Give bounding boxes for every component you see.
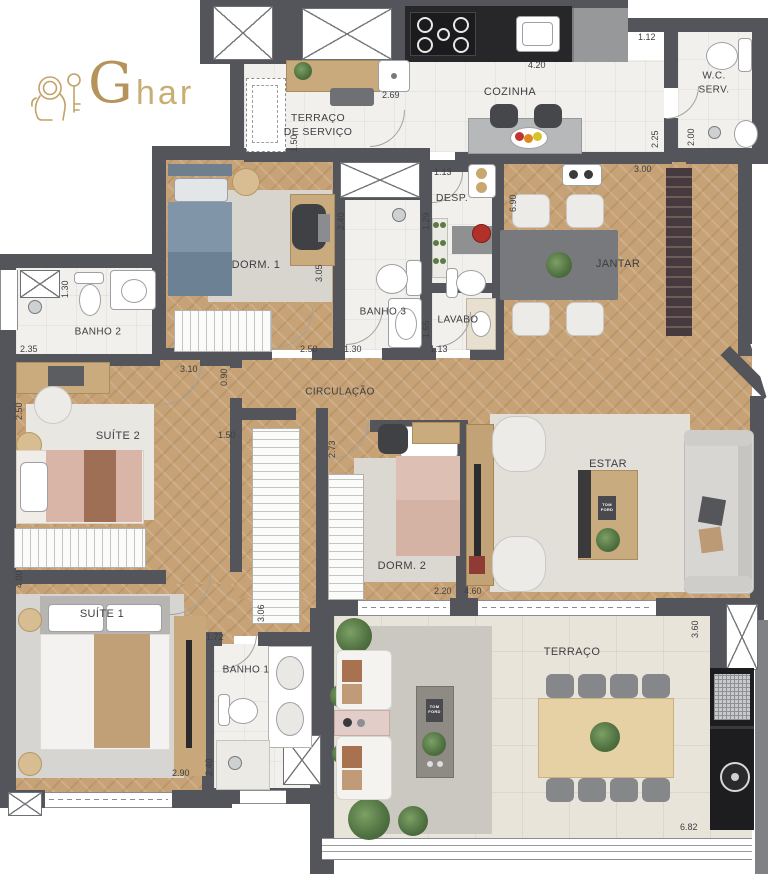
shower-head-icon — [708, 126, 721, 139]
toilet-icon — [228, 698, 258, 724]
window-banho1 — [240, 790, 286, 804]
decor-item — [437, 761, 443, 767]
room-label-circulacao: CIRCULAÇÃO — [305, 387, 375, 398]
terrace-railing — [322, 838, 752, 860]
railing-line — [322, 845, 752, 846]
kitchen-sink-icon — [516, 16, 560, 52]
dimension: 2.50 — [14, 402, 24, 420]
bed-throw — [94, 634, 150, 748]
laptop-icon — [318, 214, 330, 242]
toilet-icon — [376, 264, 408, 294]
plant-icon — [348, 798, 390, 840]
fruit — [524, 134, 533, 143]
basin-icon — [276, 702, 304, 736]
outdoor-chair — [610, 778, 638, 802]
basin-icon — [276, 656, 304, 690]
glass-door-estar-terraco — [478, 600, 656, 616]
dimension: 2.35 — [20, 344, 38, 354]
nightstand — [18, 608, 42, 632]
sofa-backrest — [738, 434, 752, 588]
toilet-tank — [738, 38, 752, 72]
wall — [258, 632, 310, 646]
plant-icon — [596, 528, 620, 552]
dimension: 0.90 — [219, 368, 229, 386]
shower-head-icon — [28, 300, 42, 314]
logo-letter-g: G — [88, 56, 133, 112]
logo-text: har — [136, 76, 194, 110]
dimension: 1.30 — [344, 344, 362, 354]
jar — [440, 222, 446, 228]
sideboard-appliance — [562, 164, 602, 186]
dimension: 1.13 — [430, 344, 448, 354]
closet-dorm1 — [174, 310, 272, 352]
pantry-rack — [468, 164, 496, 198]
stove-icon — [410, 12, 476, 56]
burner-icon — [437, 28, 450, 41]
sink-basin — [522, 22, 553, 46]
dimension: 2.25 — [650, 130, 660, 148]
toilet-tank — [74, 272, 104, 284]
wall — [230, 60, 244, 160]
room-label-banho3: BANHO 3 — [360, 307, 407, 318]
jar — [476, 182, 487, 193]
knob — [584, 170, 593, 179]
service-sink-icon — [378, 60, 410, 92]
shower-head-icon — [392, 208, 406, 222]
dimension: 2.73 — [327, 440, 337, 458]
dimension: 1.30 — [60, 280, 70, 298]
plant-icon — [590, 722, 620, 752]
room-label-suite2: SUÍTE 2 — [96, 430, 140, 442]
wall — [686, 152, 752, 164]
dimension: 3.06 — [256, 604, 266, 622]
shaft-hatch-icon — [302, 8, 392, 60]
bathroom-sink — [388, 298, 422, 348]
knob — [569, 170, 578, 179]
basin-icon — [121, 279, 147, 303]
toilet-icon — [456, 270, 486, 296]
dimension: 2.40 — [204, 758, 214, 776]
railing-line — [322, 851, 752, 852]
dimension: 4.60 — [464, 586, 482, 596]
room-label-suite1: SUÍTE 1 — [80, 608, 124, 620]
desk-chair — [378, 424, 408, 454]
bed-blanket — [168, 252, 232, 296]
outdoor-chair — [546, 674, 574, 698]
dimension: 3.10 — [180, 364, 198, 374]
stool — [534, 104, 562, 128]
reserved-area-inner — [252, 85, 278, 143]
sofa-pillow — [698, 496, 726, 526]
wall — [738, 164, 752, 356]
window-banho2 — [0, 270, 18, 330]
washer-icon — [330, 88, 374, 106]
wall — [230, 398, 242, 572]
dimension: 3.00 — [634, 164, 652, 174]
jar — [433, 222, 439, 228]
wall — [16, 570, 166, 584]
tv-icon — [186, 640, 192, 748]
jar — [440, 258, 446, 264]
mixer-icon — [472, 224, 491, 243]
burner-icon — [453, 17, 469, 33]
wall — [664, 118, 678, 152]
toilet-icon — [706, 42, 738, 70]
sofa-armrest — [684, 576, 752, 592]
shaft-hatch-icon — [8, 792, 42, 816]
armchair — [492, 536, 546, 592]
dimension: 2.69 — [382, 90, 400, 100]
room-label-cozinha: COZINHA — [484, 86, 536, 98]
drain — [391, 73, 397, 79]
dining-chair — [566, 194, 604, 228]
plant-icon — [294, 62, 312, 80]
dimension: 1.13 — [434, 167, 452, 177]
dimension: 1.12 — [638, 32, 656, 42]
glass-door-dorm2-terraco — [358, 600, 450, 616]
decor-item — [343, 718, 352, 727]
decor-book: TOM FORD — [598, 496, 616, 520]
room-label-terraco: TERRAÇO — [544, 646, 601, 658]
dimension: 2.50 — [300, 344, 318, 354]
room-label-wc-serv: SERV. — [699, 85, 730, 96]
toilet-icon — [79, 284, 101, 316]
wall — [610, 18, 760, 32]
wine-rack — [666, 168, 692, 336]
toilet-tank — [406, 260, 422, 296]
dresser — [412, 422, 460, 444]
wall — [382, 348, 436, 360]
jar — [476, 168, 487, 179]
burner-icon — [417, 37, 433, 53]
room-label-dorm2: DORM. 2 — [378, 560, 427, 572]
plant-icon — [422, 732, 446, 756]
coffee-table-tray — [578, 470, 591, 558]
sofa-armrest — [684, 430, 752, 446]
wall — [664, 32, 678, 88]
dimension: 6.82 — [680, 822, 698, 832]
room-label-dorm1: DORM. 1 — [232, 259, 281, 271]
shaft-hatch-icon — [20, 270, 60, 298]
decor-books — [469, 556, 485, 574]
bed-throw — [84, 450, 116, 522]
room-label-desp: DESP. — [436, 192, 468, 204]
jar — [433, 258, 439, 264]
bed-headboard — [168, 164, 232, 176]
jar — [440, 240, 446, 246]
sofa-pillow — [698, 527, 723, 554]
armchair — [492, 416, 546, 472]
room-label-estar: ESTAR — [589, 458, 627, 470]
bathroom-sink — [110, 270, 156, 310]
room-label-terraco-servico: TERRAÇO — [291, 112, 345, 124]
sofa-pillow — [342, 684, 362, 704]
bed-blanket — [396, 500, 460, 556]
outdoor-chair — [642, 674, 670, 698]
plant-icon — [336, 618, 372, 654]
sofa-pillow — [342, 660, 362, 682]
room-label-lavabo: LAVABO — [438, 315, 479, 326]
decor-item — [427, 761, 433, 767]
window-mullion — [362, 607, 446, 608]
dimension: 1.72 — [206, 632, 224, 642]
fruit — [515, 132, 524, 141]
room-label-banho1: BANHO 1 — [223, 665, 270, 676]
desk-chair — [34, 386, 72, 424]
dimension: 6.90 — [508, 194, 518, 212]
stool — [490, 104, 518, 128]
lion-key-logo-icon — [28, 68, 94, 128]
bbq-divider — [710, 726, 754, 729]
decor-book: TOM FORD — [426, 699, 443, 722]
dimension: 1.50 — [218, 430, 236, 440]
burner-icon — [453, 37, 469, 53]
outdoor-chair — [610, 674, 638, 698]
laptop-icon — [48, 366, 84, 386]
plant-icon — [398, 806, 428, 836]
dimension: 1.29 — [421, 212, 431, 230]
shaft-hatch-icon — [213, 6, 273, 60]
window-suite1 — [45, 792, 172, 808]
floor-plan: TOM FORD TOM FORD — [0, 0, 768, 874]
sofa-pillow — [342, 746, 362, 768]
decor-item — [357, 719, 365, 727]
wall — [0, 254, 166, 268]
outdoor-chair — [578, 674, 606, 698]
bbq-sink-icon — [720, 762, 750, 792]
kitchen-tall-cabinet — [572, 8, 628, 62]
drain — [731, 773, 739, 781]
wall — [450, 598, 478, 616]
shaft-hatch-icon — [726, 604, 758, 670]
room-label-banho2: BANHO 2 — [75, 327, 122, 338]
sofa-pillow — [342, 770, 362, 790]
book-title: TOM FORD — [598, 503, 616, 512]
shaft-hatch-icon — [340, 162, 420, 198]
reserved-area-dashed — [246, 78, 286, 152]
dimension: 2.90 — [172, 768, 190, 778]
dimension: 1.50 — [289, 134, 299, 152]
plant-icon — [546, 252, 572, 278]
wall — [607, 152, 672, 164]
room-label-jantar: JANTAR — [596, 258, 640, 270]
dimension: 4.00 — [14, 570, 24, 588]
grill-icon — [714, 674, 750, 720]
burner-icon — [417, 17, 433, 33]
shower-head-icon — [228, 756, 242, 770]
fruit — [533, 132, 542, 141]
outdoor-side-table — [334, 710, 390, 736]
book-title: TOM FORD — [426, 705, 443, 714]
fruit-bowl — [510, 127, 548, 149]
pillow — [20, 462, 48, 512]
room-label-wc-serv: W.C. — [702, 71, 725, 82]
tv-icon — [474, 464, 481, 560]
dining-chair — [566, 302, 604, 336]
shower-area — [216, 740, 270, 790]
dimension: 4.20 — [528, 60, 546, 70]
dimension: 3.60 — [690, 620, 700, 638]
side-table — [232, 168, 260, 196]
dining-chair — [512, 302, 550, 336]
dimension: 2.40 — [336, 212, 346, 230]
wall — [230, 354, 242, 368]
dimension: 2.20 — [434, 586, 452, 596]
window-mullion — [49, 799, 168, 800]
dimension: 1.65 — [421, 320, 431, 338]
jar — [433, 240, 439, 246]
closet-dorm2 — [328, 474, 364, 600]
dimension: 3.05 — [314, 264, 324, 282]
outdoor-chair — [578, 778, 606, 802]
closet-corridor — [252, 428, 300, 624]
pillow — [174, 178, 228, 202]
closet-suite2 — [14, 528, 146, 568]
window-mullion — [482, 607, 652, 608]
nightstand — [18, 752, 42, 776]
wall — [152, 146, 244, 160]
outdoor-chair — [546, 778, 574, 802]
dimension: 2.00 — [686, 128, 696, 146]
wc-sink-icon — [734, 120, 758, 148]
outdoor-chair — [642, 778, 670, 802]
